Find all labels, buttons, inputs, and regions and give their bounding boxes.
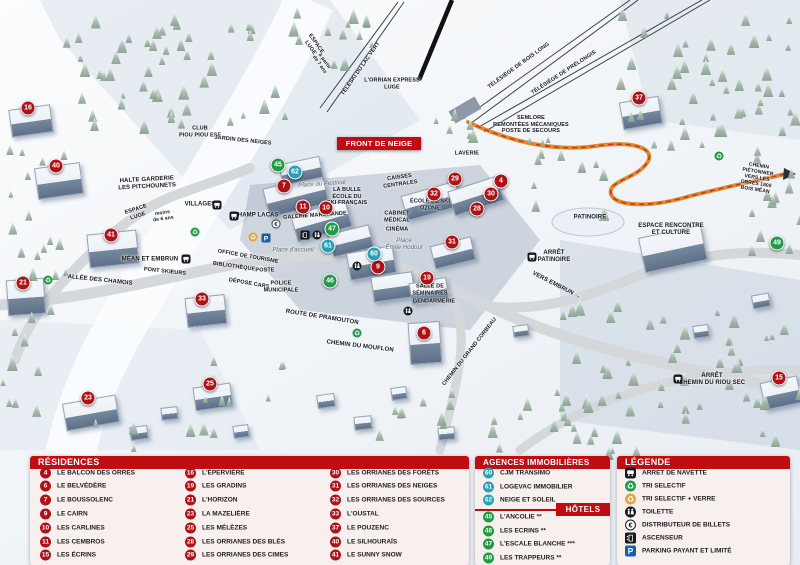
residence-item: 23LA MAZELIÈRE <box>185 508 250 519</box>
hotel-item: 49LES TRAPPEURS ** <box>483 552 561 563</box>
building <box>692 323 710 338</box>
marker-31[interactable]: 31 <box>445 235 460 250</box>
marker-61[interactable]: 61 <box>321 239 336 254</box>
item-number: 61 <box>483 481 494 492</box>
item-label: LE CAIRN <box>57 510 88 517</box>
residence-item: 7LE BOUSSOLENC <box>40 495 113 506</box>
bus-icon <box>674 375 683 384</box>
item-label: LES ORRIANES DES FORÊTS <box>347 469 439 476</box>
item-label: LES ORRIANES DES BLÉS <box>202 538 285 545</box>
item-number: 23 <box>185 508 196 519</box>
residence-item: 19LES GRADINS <box>185 481 246 492</box>
item-label: L'OUSTAL <box>347 510 379 517</box>
agence-item: 60CJM TRANSIMO <box>483 468 550 479</box>
map-label: PATINOIRE <box>574 214 607 221</box>
marker-49[interactable]: 49 <box>770 236 785 251</box>
residence-item: 9LE CAIRN <box>40 508 88 519</box>
svg-text:♻: ♻ <box>627 482 634 491</box>
legende-item: ♻TRI SELECTIF <box>625 481 686 492</box>
item-label: LE BOUSSOLENC <box>57 497 113 504</box>
residences-panel: RÉSIDENCES 4LE BALCON DES ORRES6LE BELVÉ… <box>30 456 469 565</box>
map-label: CHEMIN PIÉTONNIER VERS LES ORRES 1800 BO… <box>733 160 780 196</box>
marker-15[interactable]: 15 <box>772 371 787 386</box>
map-label: CINÉMA <box>386 227 408 234</box>
item-label: LE POUZENC <box>347 524 389 531</box>
recycle-icon: ♻ <box>191 228 200 237</box>
marker-21[interactable]: 21 <box>16 276 31 291</box>
item-label: LES TRAPPEURS ** <box>500 554 561 561</box>
marker-4[interactable]: 4 <box>494 174 509 189</box>
item-label: ASCENSEUR <box>642 535 683 542</box>
item-number: 32 <box>330 495 341 506</box>
legende-item: ARRET DE NAVETTE <box>625 468 707 479</box>
item-label: TRI SELECTIF <box>642 483 686 490</box>
item-number: 46 <box>483 525 494 536</box>
hotels-header: HÔTELS <box>556 503 610 516</box>
euro-icon: € <box>272 220 281 229</box>
map-label: POLICE MUNICIPALE <box>264 280 299 293</box>
residence-item: 21L'HORIZON <box>185 495 238 506</box>
building <box>512 324 530 338</box>
building <box>232 423 250 438</box>
resort-map-page: { "map": { "banner": "FRONT DE NEIGE 165… <box>0 0 800 565</box>
item-label: LE SILHOURAÏS <box>347 538 397 545</box>
marker-62[interactable]: 62 <box>288 165 303 180</box>
recycle-verre-icon: ♻ <box>625 494 636 505</box>
marker-28[interactable]: 28 <box>470 202 485 217</box>
recycle-icon: ♻ <box>715 152 724 161</box>
marker-60[interactable]: 60 <box>367 247 382 262</box>
item-label: PARKING PAYANT ET LIMITÉ <box>642 548 732 555</box>
marker-25[interactable]: 25 <box>203 377 218 392</box>
item-number: 31 <box>330 481 341 492</box>
map-label: CABINET MÉDICAL <box>384 210 410 223</box>
svg-text:♻: ♻ <box>354 330 360 337</box>
svg-text:♻: ♻ <box>45 277 51 284</box>
residence-item: 41LE SUNNY SNOW <box>330 550 402 561</box>
recycle-icon: ♻ <box>44 276 53 285</box>
parking-icon: P <box>625 546 636 557</box>
map-label: ARRÊT CHEMIN DU RIOU SEC <box>679 373 745 387</box>
marker-33[interactable]: 33 <box>195 292 210 307</box>
agence-item: 61LOGEVAC IMMOBILIER <box>483 481 572 492</box>
item-number: 6 <box>40 481 51 492</box>
wc-icon <box>313 231 322 240</box>
item-label: LE SUNNY SNOW <box>347 552 402 559</box>
item-number: 9 <box>40 508 51 519</box>
marker-32[interactable]: 32 <box>427 187 442 202</box>
map-label: POSTE <box>255 268 274 275</box>
map-label: SEMLORE REMONTÉES MÉCANIQUES POSTE DE SE… <box>493 115 569 135</box>
item-number: 37 <box>330 522 341 533</box>
residence-item: 16L'ÉPERVIÈRE <box>185 467 245 478</box>
map-label: ESPACE RENCONTRE ET CULTURE <box>638 223 704 237</box>
svg-text:♻: ♻ <box>716 153 722 160</box>
item-label: LOGEVAC IMMOBILIER <box>500 483 572 490</box>
front-de-neige-banner: FRONT DE NEIGE 1650 <box>337 137 421 150</box>
item-number: 41 <box>330 550 341 561</box>
bus-icon <box>182 255 191 264</box>
item-number: 16 <box>185 467 196 478</box>
map-label: L'ORRIAN EXPRESS LUGE <box>364 77 419 90</box>
item-label: L'ANCOLIE ** <box>500 514 542 521</box>
item-label: LE BELVÉDÈRE <box>57 483 106 490</box>
residence-item: 6LE BELVÉDÈRE <box>40 481 106 492</box>
residence-item: 28LES ORRIANES DES BLÉS <box>185 536 285 547</box>
item-number: 25 <box>185 522 196 533</box>
recycle-verre-icon: ♻ <box>249 233 258 242</box>
marker-16[interactable]: 16 <box>21 101 36 116</box>
wc-icon <box>353 262 362 271</box>
marker-37[interactable]: 37 <box>632 91 647 106</box>
item-number: 30 <box>330 467 341 478</box>
item-label: DISTRIBUTEUR DE BILLETS <box>642 522 730 529</box>
svg-text:P: P <box>264 235 269 242</box>
map-label: HALTE GARDERIE LES PITCHOUNETS <box>118 175 177 192</box>
legende-item: ♻TRI SELECTIF + VERRE <box>625 494 716 505</box>
item-number: 19 <box>185 481 196 492</box>
wc-icon <box>404 307 413 316</box>
item-label: CJM TRANSIMO <box>500 470 550 477</box>
hotel-item: 45L'ANCOLIE ** <box>483 512 542 523</box>
item-number: 40 <box>330 536 341 547</box>
marker-46[interactable]: 46 <box>323 274 338 289</box>
euro-icon: € <box>625 520 636 531</box>
recycle-icon: ♻ <box>353 329 362 338</box>
recycle-icon: ♻ <box>625 481 636 492</box>
building <box>316 393 336 409</box>
marker-11[interactable]: 11 <box>296 200 311 215</box>
item-number: 49 <box>483 552 494 563</box>
item-label: L'HORIZON <box>202 497 238 504</box>
elevator-icon <box>625 533 636 544</box>
marker-7[interactable]: 7 <box>277 179 292 194</box>
marker-45[interactable]: 45 <box>271 158 286 173</box>
residence-item: 30LES ORRIANES DES FORÊTS <box>330 467 439 478</box>
marker-19[interactable]: 19 <box>420 271 435 286</box>
item-number: 47 <box>483 539 494 550</box>
parking-icon: P <box>262 234 271 243</box>
marker-10[interactable]: 10 <box>319 201 334 216</box>
agences-hotels-panel: AGENCES IMMOBILIÈRES 60CJM TRANSIMO61LOG… <box>475 456 610 565</box>
bus-icon <box>528 253 537 262</box>
item-number: 21 <box>185 495 196 506</box>
item-label: ARRET DE NAVETTE <box>642 470 707 477</box>
item-label: LES ORRIANES DES CIMES <box>202 552 288 559</box>
residence-item: 37LE POUZENC <box>330 522 389 533</box>
elevator-icon <box>301 231 310 240</box>
map-label: VILLAGES <box>185 201 216 208</box>
hotel-item: 46LES ECRINS ** <box>483 525 546 536</box>
residence-item: 11LES CEMBROS <box>40 536 105 547</box>
item-number: 29 <box>185 550 196 561</box>
map-label: Place d'accueil <box>272 247 313 254</box>
residence-item: 15LES ÉCRINS <box>40 550 96 561</box>
legende-item: ASCENSEUR <box>625 533 683 544</box>
map-label: MÉAN ET EMBRUN <box>122 256 178 263</box>
item-number: 7 <box>40 495 51 506</box>
marker-6[interactable]: 6 <box>417 326 432 341</box>
map-label: LAVERIE <box>455 151 479 158</box>
marker-47[interactable]: 47 <box>325 222 340 237</box>
item-label: LES MÉLÈZES <box>202 524 247 531</box>
item-number: 4 <box>40 467 51 478</box>
agence-item: 62NEIGE ET SOLEIL <box>483 495 556 506</box>
residence-item: 40LE SILHOURAÏS <box>330 536 397 547</box>
item-number: 33 <box>330 508 341 519</box>
item-number: 11 <box>40 536 51 547</box>
item-label: L'ÉPERVIÈRE <box>202 469 245 476</box>
map-label: ARRÊT PATINOIRE <box>538 250 571 264</box>
svg-text:P: P <box>628 547 634 556</box>
svg-text:♻: ♻ <box>627 495 634 504</box>
building <box>160 406 178 421</box>
item-label: NEIGE ET SOLEIL <box>500 497 556 504</box>
item-label: LA MAZELIÈRE <box>202 510 250 517</box>
item-label: TOILETTE <box>642 509 673 516</box>
item-number: 15 <box>40 550 51 561</box>
svg-text:€: € <box>629 522 633 530</box>
residence-item: 32LES ORRIANES DES SOURCES <box>330 495 445 506</box>
marker-41[interactable]: 41 <box>104 228 119 243</box>
hotel-item: 47L'ESCALE BLANCHE *** <box>483 539 575 550</box>
item-label: LES ECRINS ** <box>500 527 546 534</box>
residence-item: 31LES ORRIANES DES NEIGES <box>330 481 437 492</box>
residence-item: 4LE BALCON DES ORRES <box>40 467 135 478</box>
marker-30[interactable]: 30 <box>484 187 499 202</box>
item-number: 10 <box>40 522 51 533</box>
item-label: LES GRADINS <box>202 483 246 490</box>
bus-icon <box>230 212 239 221</box>
map-label: SALLE DE SÉMINAIRES <box>412 283 447 296</box>
building <box>353 415 372 431</box>
bus-icon <box>625 468 636 479</box>
legende-item: PPARKING PAYANT ET LIMITÉ <box>625 546 732 557</box>
legende-item: TOILETTE <box>625 507 673 518</box>
map-label: Place Émile Hodoul <box>386 238 423 252</box>
svg-text:♻: ♻ <box>250 234 256 241</box>
item-label: LES CEMBROS <box>57 538 105 545</box>
bus-icon <box>213 201 222 210</box>
marker-9[interactable]: 9 <box>371 260 386 275</box>
item-label: TRI SELECTIF + VERRE <box>642 496 716 503</box>
item-number: 60 <box>483 468 494 479</box>
item-label: LES ÉCRINS <box>57 552 96 559</box>
residence-item: 29LES ORRIANES DES CIMES <box>185 550 288 561</box>
svg-text:♻: ♻ <box>192 229 198 236</box>
marker-29[interactable]: 29 <box>448 172 463 187</box>
marker-23[interactable]: 23 <box>81 391 96 406</box>
marker-40[interactable]: 40 <box>49 159 64 174</box>
item-label: LE BALCON DES ORRES <box>57 469 135 476</box>
building <box>390 385 408 400</box>
item-number: 28 <box>185 536 196 547</box>
item-label: LES ORRIANES DES SOURCES <box>347 497 445 504</box>
item-label: LES ORRIANES DES NEIGES <box>347 483 437 490</box>
residence-item: 10LES CARLINES <box>40 522 105 533</box>
residence-item: 33L'OUSTAL <box>330 508 379 519</box>
map-label: LA BULLE ÉCOLE DU SKI FRANÇAIS <box>327 187 367 207</box>
wc-icon <box>625 507 636 518</box>
item-label: LES CARLINES <box>57 524 105 531</box>
legende-panel: LÉGENDE ARRET DE NAVETTE♻TRI SELECTIF♻TR… <box>617 456 790 565</box>
item-number: 45 <box>483 512 494 523</box>
item-label: L'ESCALE BLANCHE *** <box>500 541 575 548</box>
item-number: 62 <box>483 495 494 506</box>
residence-item: 25LES MÉLÈZES <box>185 522 247 533</box>
legende-item: €DISTRIBUTEUR DE BILLETS <box>625 520 730 531</box>
map-label: GENDARMERIE <box>413 299 455 306</box>
